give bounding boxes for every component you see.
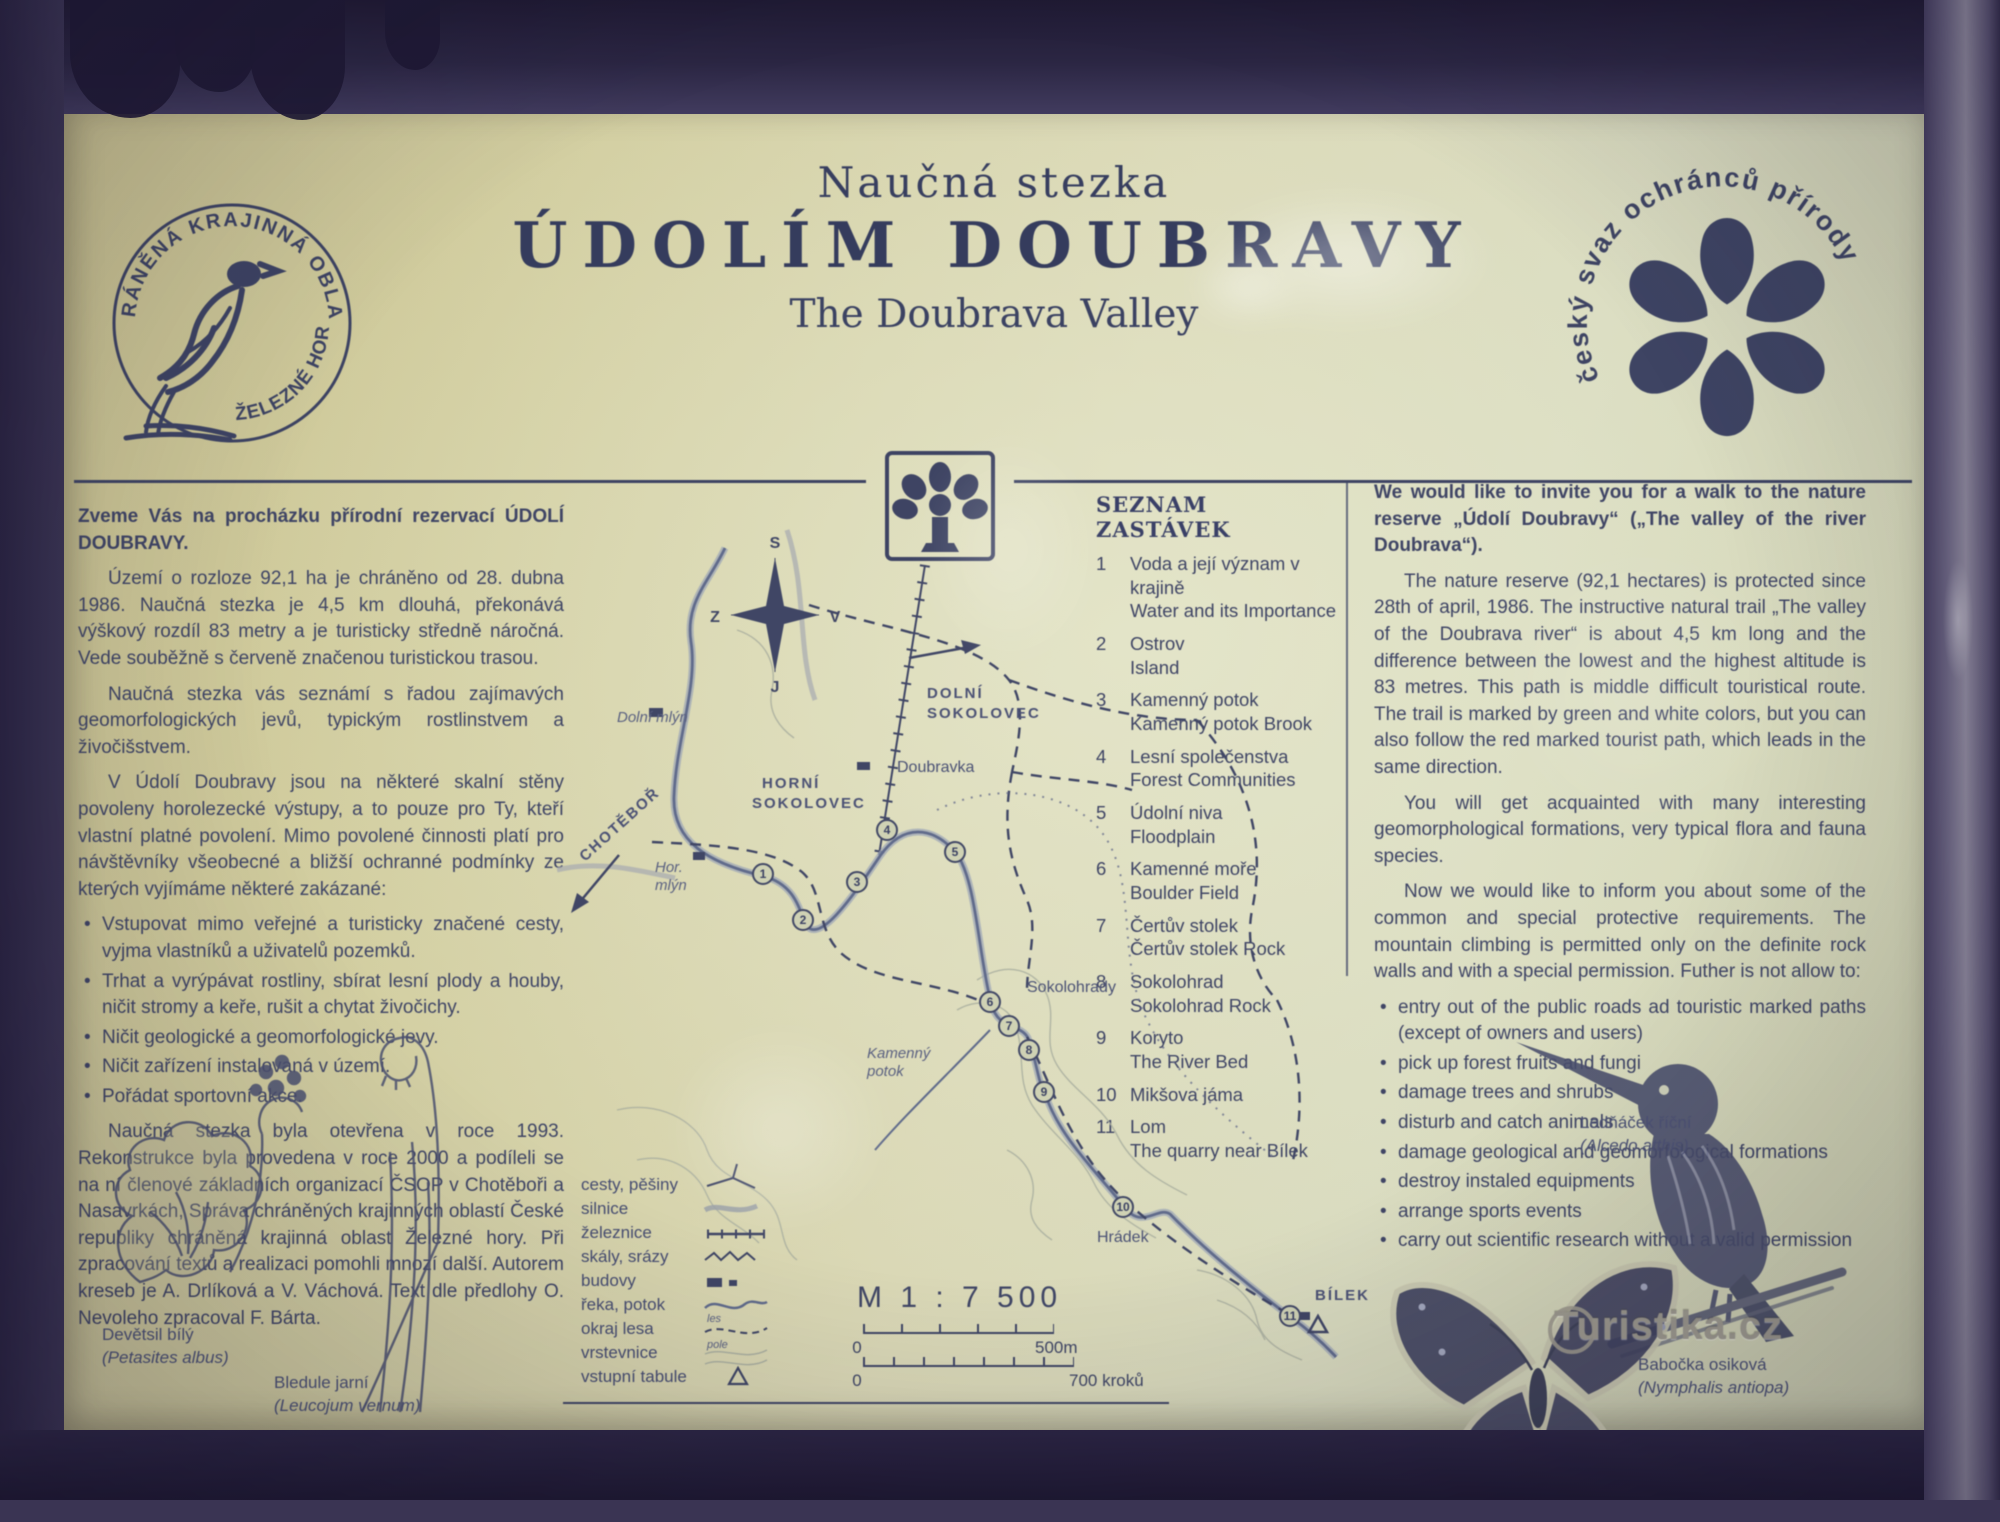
legend-label: silnice	[581, 1199, 628, 1218]
zelezne-hory-seal: CHRÁNĚNÁ KRAJINNÁ OBLAST • ŽELEZNÉ HORY	[92, 168, 372, 468]
petasites-caption: Devětsil bílý (Petasites albus)	[102, 1324, 229, 1370]
map-label-dolni-mlyn: Dolní mlýn	[617, 709, 688, 726]
leucojum-caption: Bledule jarní (Leucojum vernum)	[274, 1372, 420, 1418]
english-paragraph: The nature reserve (92,1 hectares) is pr…	[1374, 569, 1866, 782]
svg-text:6: 6	[987, 995, 994, 1009]
map-scale: M 1 : 7 500 0 500m 0 700 kroků	[852, 1281, 1143, 1390]
caption-latin: (Alcedo atthis)	[1580, 1136, 1689, 1155]
compass-west: Z	[710, 609, 720, 626]
map-legend: cesty, pěšiny silnice železnice skály, s…	[581, 1164, 767, 1386]
railway	[879, 565, 925, 855]
scale-zero-m: 0	[852, 1338, 861, 1357]
map-label-hradek: Hrádek	[1097, 1229, 1150, 1246]
kingfisher-caption: Ledňáček říční (Alcedo atthis)	[1580, 1112, 1692, 1158]
watermark: Turistika.cz	[1554, 1304, 1783, 1349]
flower-icon	[1619, 218, 1835, 436]
map-label-chotebor: CHOTĚBOŘ	[576, 783, 664, 865]
contour-lines	[617, 630, 1302, 1360]
czech-intro: Zveme Vás na procházku přírodní rezervac…	[78, 504, 564, 557]
svg-text:11: 11	[1284, 1309, 1297, 1323]
photo-frame-left	[0, 0, 64, 1500]
leucojum-sketch	[362, 1037, 439, 1412]
legend-pole: pole	[706, 1339, 728, 1351]
compass-north: S	[770, 535, 781, 552]
czech-paragraph: Území o rozloze 92,1 ha je chráněno od 2…	[78, 566, 564, 672]
svg-text:7: 7	[1006, 1019, 1013, 1033]
map-label-kamenny-potok-2: potok	[866, 1063, 905, 1080]
caption-czech: Bledule jarní	[274, 1373, 369, 1392]
map-label-horni-sokolovec: HORNÍ	[762, 775, 820, 792]
svg-text:3: 3	[854, 875, 861, 889]
scale-500m: 500m	[1035, 1338, 1078, 1357]
watermark-ring-icon	[1548, 1306, 1596, 1354]
trail-map: S Z V J Dolní mlýn DOLNÍ SOKOLOVEC Doubr…	[557, 510, 1369, 1425]
compass-south: J	[771, 679, 780, 696]
legend-glyphs	[705, 1164, 767, 1384]
caption-czech: Ledňáček říční	[1580, 1113, 1692, 1132]
english-paragraph: You will get acquainted with many intere…	[1374, 791, 1866, 871]
caption-czech: Devětsil bílý	[102, 1325, 194, 1344]
entry-board-marker	[1309, 1316, 1327, 1332]
legend-label: železnice	[581, 1223, 652, 1242]
map-label-dolni-sokolovec-2: SOKOLOVEC	[927, 705, 1041, 722]
legend-label: skály, srázy	[581, 1247, 669, 1266]
information-board: Naučná stezka ÚDOLÍM DOUBRAVY The Doubra…	[62, 112, 1926, 1432]
svg-text:8: 8	[1026, 1043, 1033, 1057]
map-label-hor-mlyn: Hor.	[655, 859, 683, 876]
svg-text:4: 4	[884, 823, 891, 837]
petasites-sketch	[116, 1056, 305, 1282]
stop-markers: 1 2 3 4 5 6 7 8 9 10 11	[753, 820, 1300, 1326]
paint-drip	[250, 0, 345, 120]
czech-paragraph: V Údolí Doubravy jsou na některé skalní …	[78, 770, 564, 903]
legend-les: les	[707, 1313, 722, 1325]
caption-latin: (Nymphalis antiopa)	[1638, 1378, 1789, 1397]
legend-label: budovy	[581, 1271, 636, 1290]
signpost-pole	[1924, 0, 2000, 1500]
caption-latin: (Leucojum vernum)	[274, 1396, 420, 1415]
english-lead: We would like to invite you for a walk t…	[1374, 480, 1866, 560]
legend-label: řeka, potok	[581, 1295, 666, 1314]
map-label-horni-sokolovec-2: SOKOLOVEC	[752, 795, 866, 812]
header-divider-left	[74, 480, 866, 483]
caption-latin: (Petasites albus)	[102, 1348, 229, 1367]
map-label-kamenny-potok: Kamenný	[867, 1045, 932, 1062]
list-item: Vstupovat mimo veřejné a turisticky znač…	[78, 912, 564, 965]
paint-drip	[175, 0, 255, 92]
photo-frame-bottom	[0, 1430, 2000, 1500]
legend-label: cesty, pěšiny	[581, 1175, 679, 1194]
paint-drip	[385, 0, 440, 70]
legend-label: vstupní tabule	[581, 1367, 687, 1386]
legend-label: okraj lesa	[581, 1319, 654, 1338]
czech-paragraph: Naučná stezka vás seznámí s řadou zajíma…	[78, 682, 564, 762]
compass-east: V	[830, 609, 841, 626]
map-label-doubravka: Doubravka	[897, 759, 974, 776]
legend-label: vrstevnice	[581, 1343, 658, 1362]
map-label-sokolohrady: Sokolohrady	[1027, 979, 1116, 996]
scale-zero-steps: 0	[852, 1371, 861, 1390]
svg-text:10: 10	[1116, 1200, 1130, 1214]
svg-text:1: 1	[760, 867, 767, 881]
buildings	[649, 708, 1310, 1320]
butterfly-caption: Babočka osiková (Nymphalis antiopa)	[1638, 1354, 1789, 1400]
svg-text:5: 5	[952, 845, 959, 859]
pole-glare	[1938, 540, 1978, 700]
map-label-dolni-sokolovec: DOLNÍ	[927, 685, 984, 702]
paint-drip	[70, 0, 180, 118]
map-label-hor-mlyn-2: mlýn	[655, 877, 687, 894]
compass-rose: S Z V J	[710, 535, 841, 696]
caption-czech: Babočka osiková	[1638, 1355, 1767, 1374]
csop-logo: český svaz ochránců přírody	[1532, 152, 1912, 492]
scale-700-steps: 700 kroků	[1069, 1371, 1144, 1390]
photo-frame-top	[0, 0, 2000, 114]
map-label-bilek: BÍLEK	[1315, 1287, 1369, 1304]
svg-text:9: 9	[1041, 1085, 1048, 1099]
scale-ratio: M 1 : 7 500	[857, 1281, 1062, 1314]
svg-text:2: 2	[800, 913, 807, 927]
